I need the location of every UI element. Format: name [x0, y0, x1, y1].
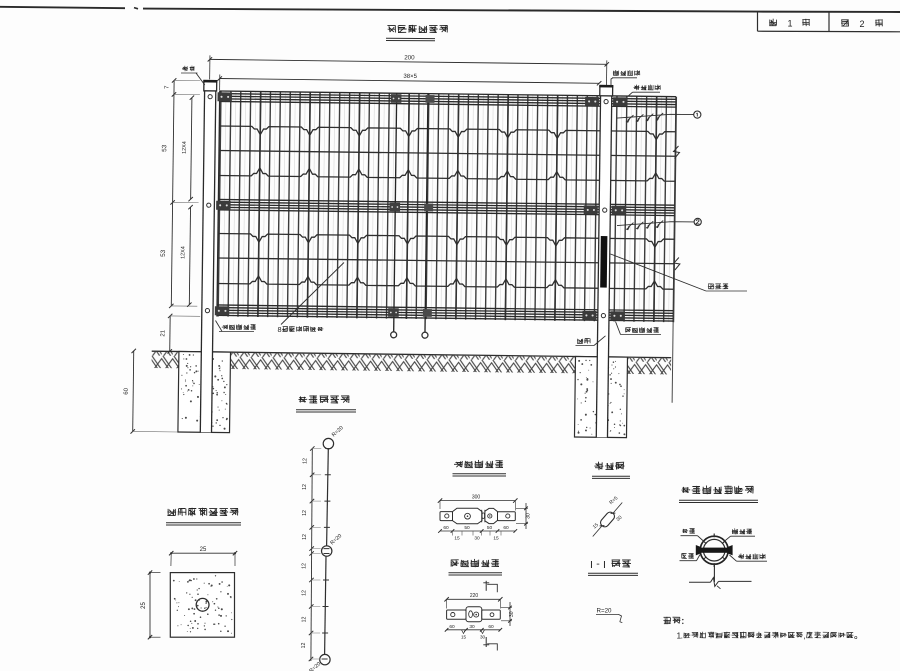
svg-text:30: 30	[480, 635, 486, 640]
svg-text:53: 53	[160, 249, 167, 257]
svg-text:R=20: R=20	[597, 608, 613, 615]
svg-text:.: .	[681, 631, 683, 641]
svg-text:12: 12	[302, 458, 308, 464]
svg-text:30: 30	[469, 624, 475, 630]
svg-text:12: 12	[302, 563, 308, 569]
svg-text:15: 15	[461, 635, 467, 640]
svg-text:50: 50	[464, 525, 470, 531]
svg-text:53: 53	[161, 144, 168, 152]
svg-text:30: 30	[615, 515, 623, 523]
svg-text:8: 8	[278, 325, 282, 334]
svg-text:30: 30	[474, 536, 480, 542]
svg-text:300: 300	[472, 494, 481, 500]
svg-text:25: 25	[200, 547, 207, 553]
svg-text:38×5: 38×5	[403, 74, 417, 80]
svg-text:200: 200	[404, 54, 415, 61]
svg-text:30: 30	[509, 611, 515, 617]
svg-text:,: ,	[803, 631, 805, 641]
svg-text:I: I	[590, 559, 593, 571]
svg-text:220: 220	[470, 593, 479, 599]
svg-text:12: 12	[302, 590, 308, 596]
svg-text:15: 15	[493, 536, 499, 542]
svg-text:2: 2	[859, 19, 864, 29]
svg-text:R=5: R=5	[608, 495, 619, 506]
svg-text:R=20: R=20	[331, 425, 345, 438]
svg-text:12: 12	[301, 617, 307, 623]
svg-text:R=20: R=20	[329, 533, 343, 546]
svg-text:15: 15	[454, 536, 460, 542]
svg-text:21: 21	[160, 329, 166, 336]
svg-text:60: 60	[124, 387, 130, 394]
svg-text:12: 12	[301, 643, 307, 649]
svg-text:60: 60	[449, 624, 455, 630]
svg-text:7: 7	[165, 85, 171, 89]
svg-text:12X4: 12X4	[182, 141, 188, 154]
svg-text:60: 60	[488, 624, 494, 630]
svg-text:50: 50	[487, 525, 493, 531]
svg-text:12: 12	[302, 534, 308, 540]
svg-text:1: 1	[787, 19, 792, 29]
svg-text:60: 60	[503, 525, 509, 531]
svg-text:30: 30	[526, 513, 532, 519]
svg-text:-: -	[596, 558, 600, 570]
svg-text:12X4: 12X4	[180, 246, 186, 259]
svg-text:25: 25	[141, 602, 147, 609]
svg-text:12: 12	[302, 510, 308, 516]
svg-text:60: 60	[443, 525, 449, 531]
svg-text:I: I	[603, 559, 606, 571]
svg-text:12: 12	[302, 484, 308, 490]
